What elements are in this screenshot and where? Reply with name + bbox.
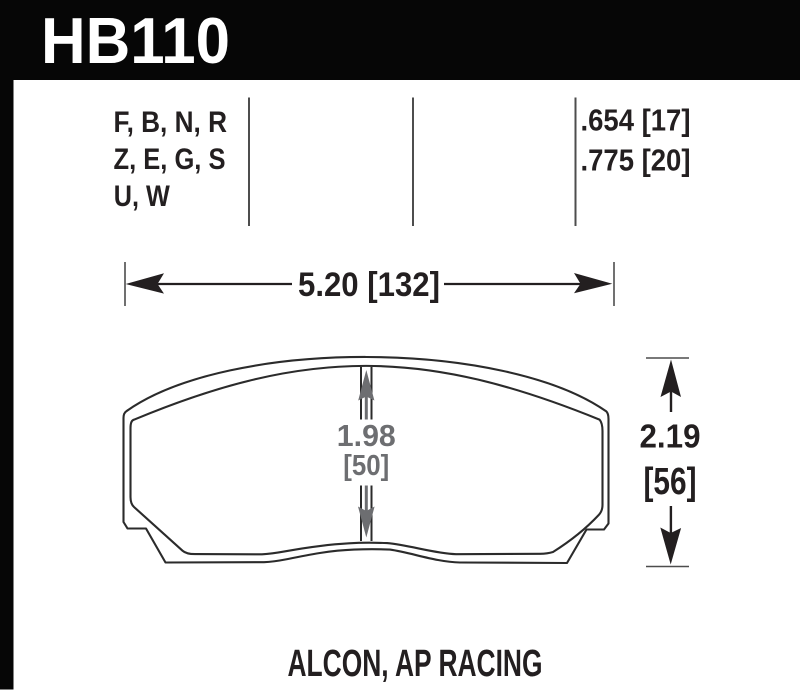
- svg-text:F, B, N, R: F, B, N, R: [114, 106, 228, 139]
- svg-text:[56]: [56]: [644, 461, 697, 503]
- svg-text:.654 [17]: .654 [17]: [581, 104, 691, 137]
- svg-text:.775 [20]: .775 [20]: [581, 144, 691, 177]
- svg-text:U, W: U, W: [114, 180, 171, 213]
- svg-text:Z, E, G, S: Z, E, G, S: [114, 143, 226, 176]
- svg-text:1.98: 1.98: [337, 418, 396, 453]
- svg-text:5.20 [132]: 5.20 [132]: [298, 266, 440, 304]
- svg-text:2.19: 2.19: [640, 417, 701, 454]
- svg-text:ALCON, AP RACING: ALCON, AP RACING: [288, 643, 543, 685]
- svg-text:[50]: [50]: [343, 450, 389, 482]
- svg-text:HB110: HB110: [41, 5, 230, 77]
